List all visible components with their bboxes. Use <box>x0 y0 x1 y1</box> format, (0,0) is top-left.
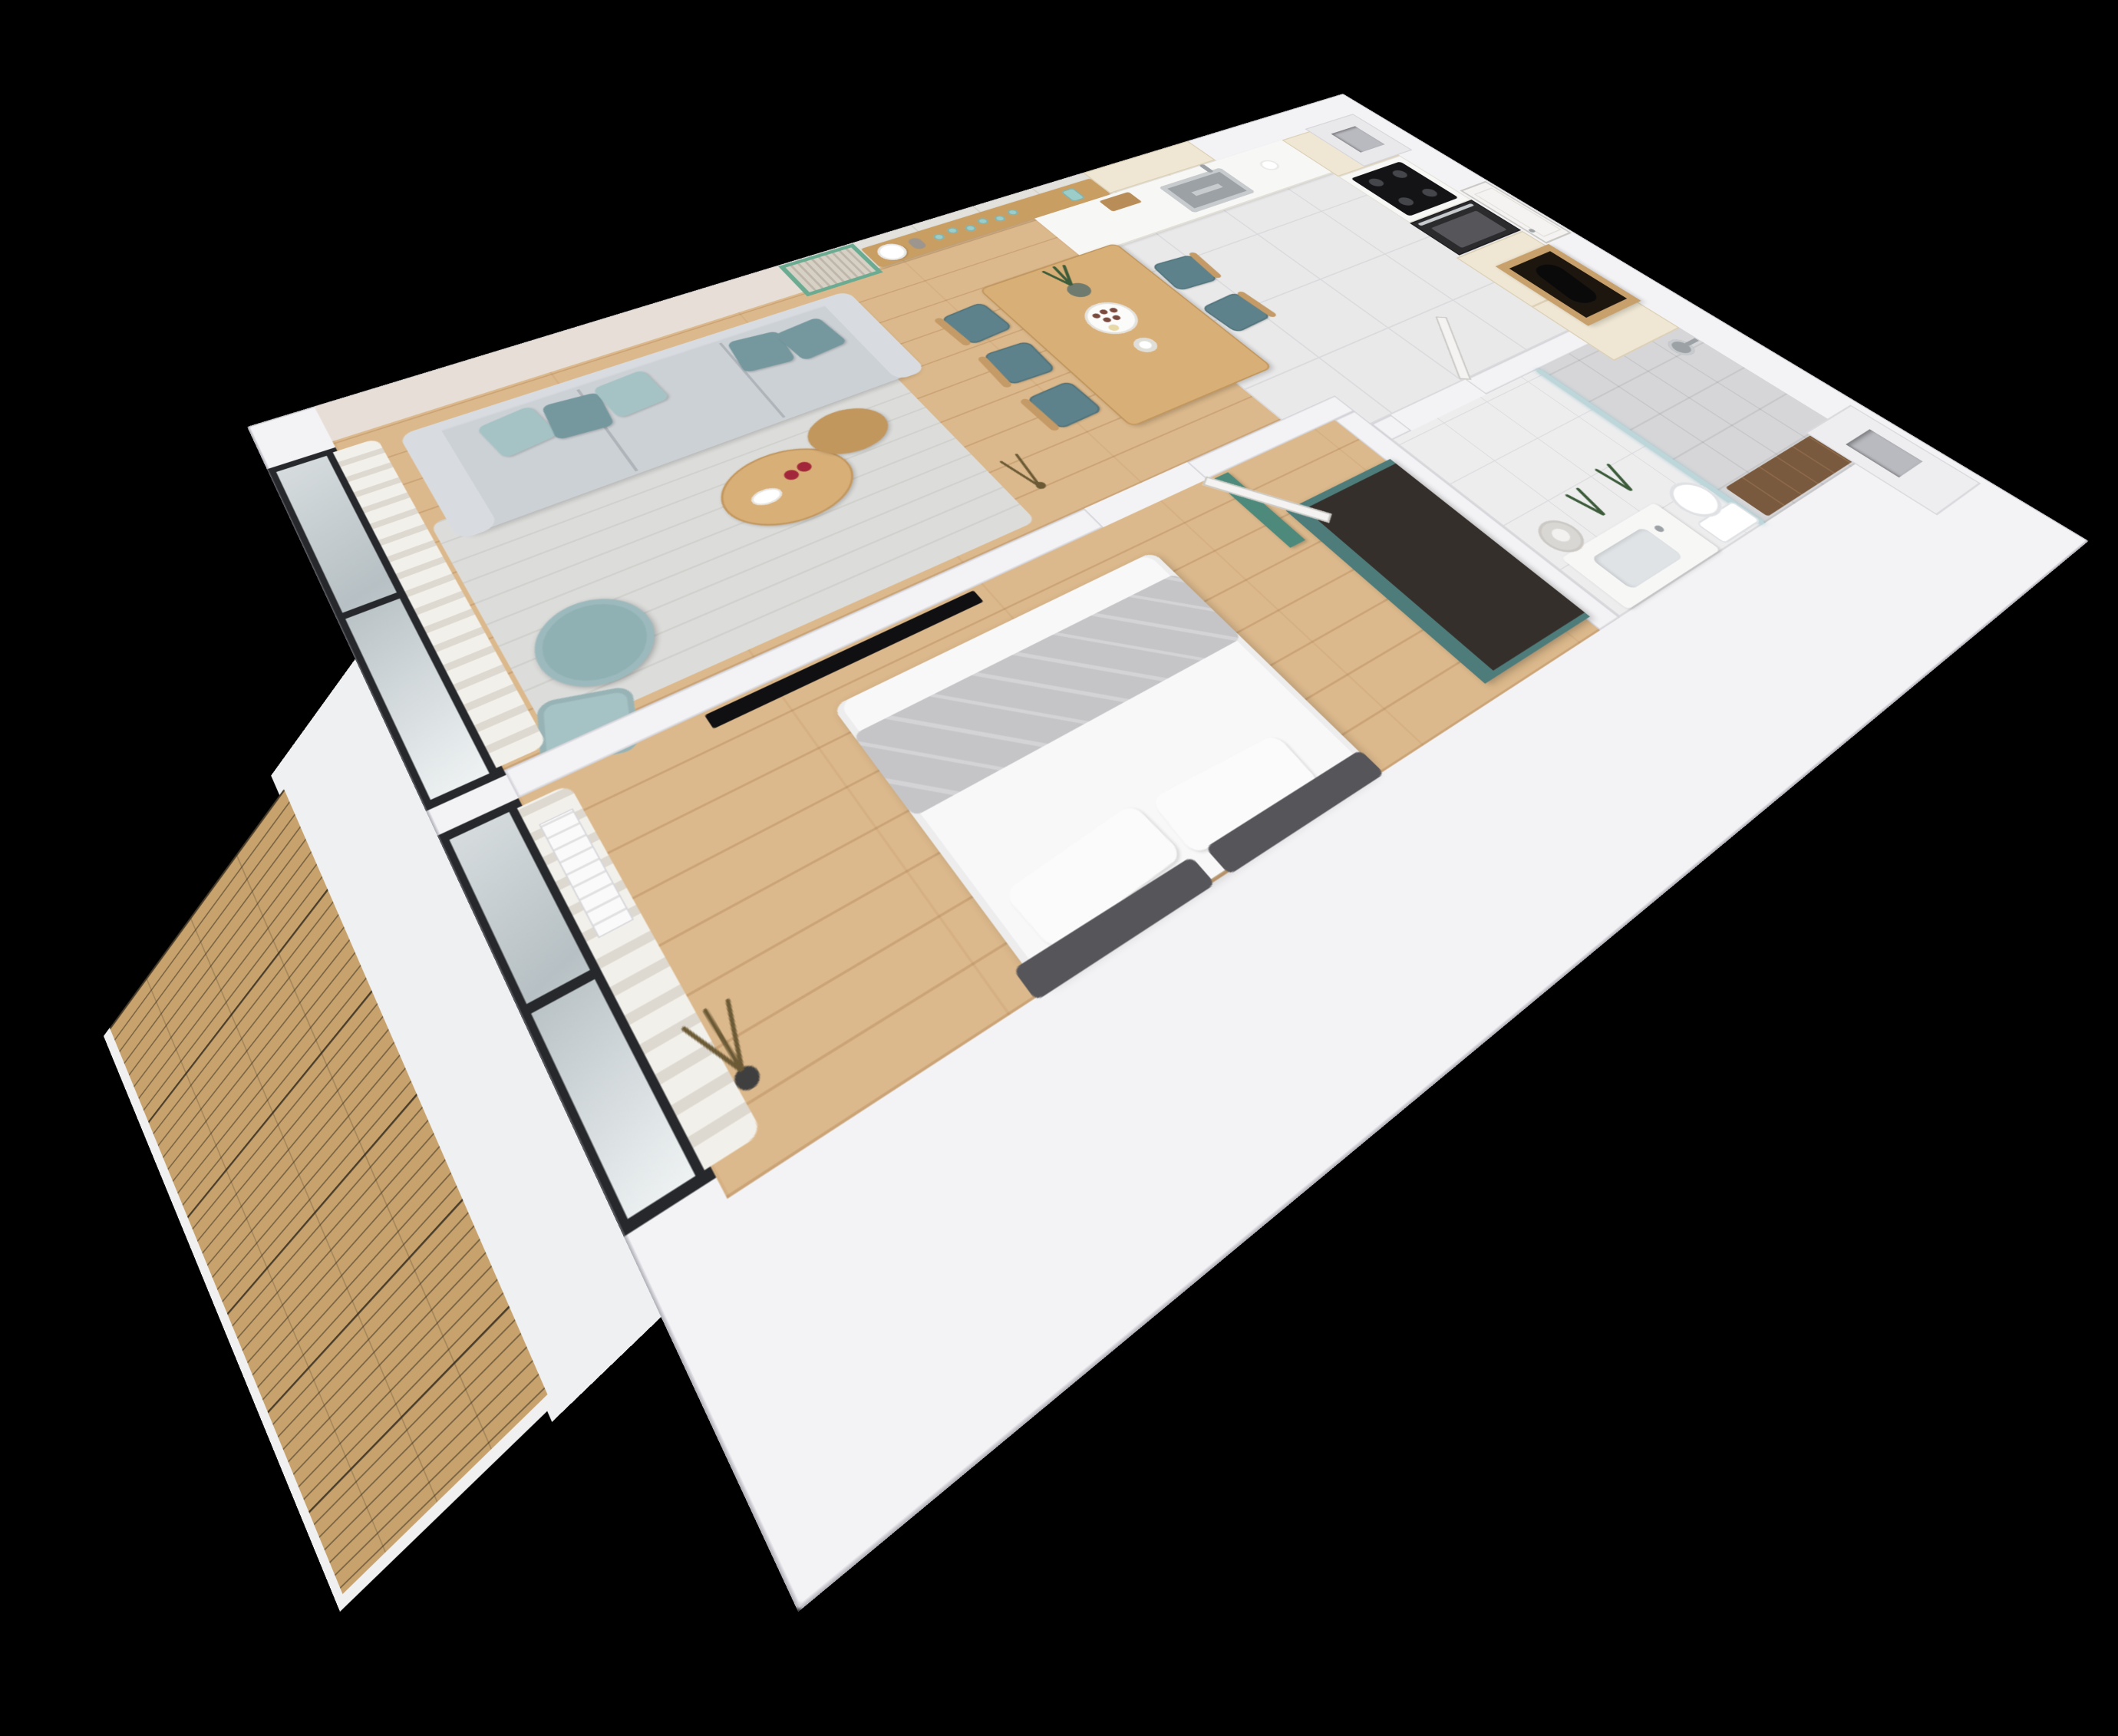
floorplan-scene <box>0 0 2118 1736</box>
